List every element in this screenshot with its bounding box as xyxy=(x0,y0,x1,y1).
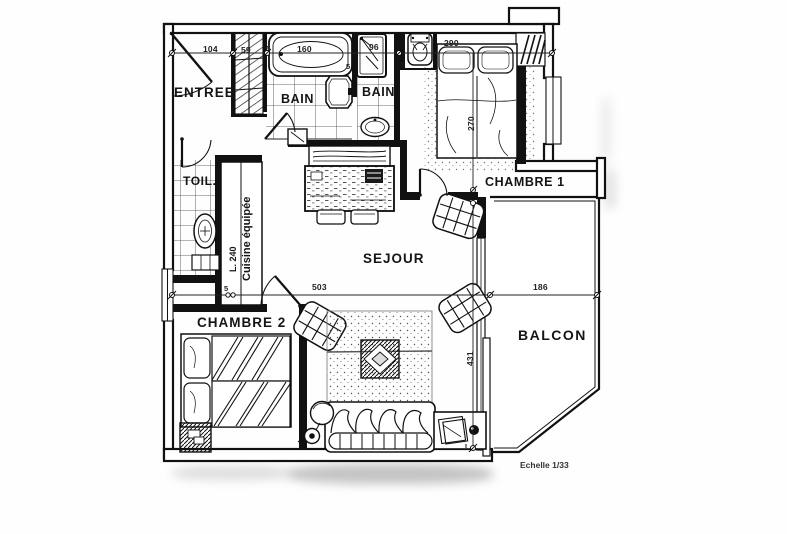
label-balcon: BALCON xyxy=(518,328,587,342)
label-cuisine-equipee: Cuisine équipée xyxy=(242,197,253,281)
sideboard xyxy=(309,146,390,166)
dim-sejour-431: 431 xyxy=(466,351,475,366)
label-chambre-1: CHAMBRE 1 xyxy=(485,176,565,189)
bedroom1-double-bed xyxy=(437,44,517,158)
dim-balcon-186: 186 xyxy=(533,283,548,292)
bathtub-icon xyxy=(269,33,352,76)
dim-entree-104: 104 xyxy=(203,45,218,54)
label-bain-1: BAIN xyxy=(281,93,314,106)
bedroom1-door xyxy=(418,169,447,197)
label-sejour: SEJOUR xyxy=(363,252,425,266)
dining-chair xyxy=(351,210,378,224)
bedroom2-door xyxy=(261,276,302,308)
tv-unit xyxy=(434,412,486,449)
dim-cloison-5b: 5 xyxy=(346,63,350,71)
balcony-outline xyxy=(490,197,599,452)
label-bain-2: BAIN xyxy=(362,86,395,99)
dining-chair xyxy=(317,210,345,224)
dim-douche-96: 96 xyxy=(369,43,379,52)
bedroom1-closet xyxy=(516,33,545,66)
washbasin-oval-icon xyxy=(361,118,389,137)
window-bedroom1 xyxy=(546,77,561,144)
dim-cloison-5c: 5 xyxy=(224,285,228,293)
dim-placard-59: 59 xyxy=(241,46,251,55)
label-cuisine-longueur: L. 240 xyxy=(229,246,238,272)
bedroom2-bedside-table xyxy=(180,423,211,452)
kitchen-appliance xyxy=(288,129,307,145)
dim-sejour-503: 503 xyxy=(312,283,327,292)
pedestal-sink-icon xyxy=(326,76,356,108)
plan-linework xyxy=(0,0,787,534)
dim-baignoire-160: 160 xyxy=(297,45,312,54)
dim-chambre1-270: 270 xyxy=(467,116,476,131)
floor-plan-scan: ENTREE BAIN BAIN TOIL. CHAMBRE 1 CHAMBRE… xyxy=(0,0,787,534)
scale-note: Echelle 1/33 xyxy=(520,461,569,470)
coffee-table xyxy=(361,340,399,378)
dim-chambre1-290: 290 xyxy=(444,39,459,48)
dining-table xyxy=(305,166,394,211)
dim-cloison-3: 3 xyxy=(400,61,404,69)
label-chambre-2: CHAMBRE 2 xyxy=(197,316,286,330)
shower-icon xyxy=(357,34,386,77)
bedroom2-double-bed xyxy=(181,334,291,427)
dim-cloison-5a: 5 xyxy=(266,45,270,53)
label-toilettes: TOIL. xyxy=(183,175,216,187)
label-entree: ENTREE xyxy=(174,86,235,100)
wc-bidet-icon xyxy=(408,33,432,65)
sofa xyxy=(325,402,435,452)
